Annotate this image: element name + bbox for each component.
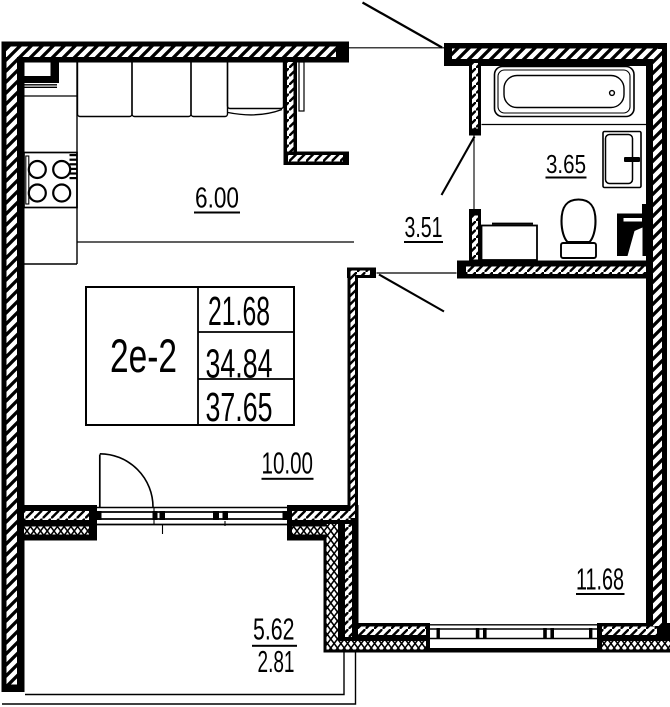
svg-text:3.65: 3.65 bbox=[546, 149, 586, 179]
svg-text:2е-2: 2е-2 bbox=[110, 329, 177, 382]
svg-text:3.51: 3.51 bbox=[405, 212, 443, 244]
svg-text:21.68: 21.68 bbox=[208, 288, 270, 334]
svg-text:11.68: 11.68 bbox=[576, 563, 624, 597]
svg-text:6.00: 6.00 bbox=[195, 183, 239, 215]
svg-text:5.62: 5.62 bbox=[253, 613, 295, 647]
svg-text:10.00: 10.00 bbox=[262, 447, 314, 481]
svg-text:2.81: 2.81 bbox=[258, 645, 295, 679]
svg-text:34.84: 34.84 bbox=[206, 341, 273, 387]
svg-text:37.65: 37.65 bbox=[206, 384, 273, 430]
